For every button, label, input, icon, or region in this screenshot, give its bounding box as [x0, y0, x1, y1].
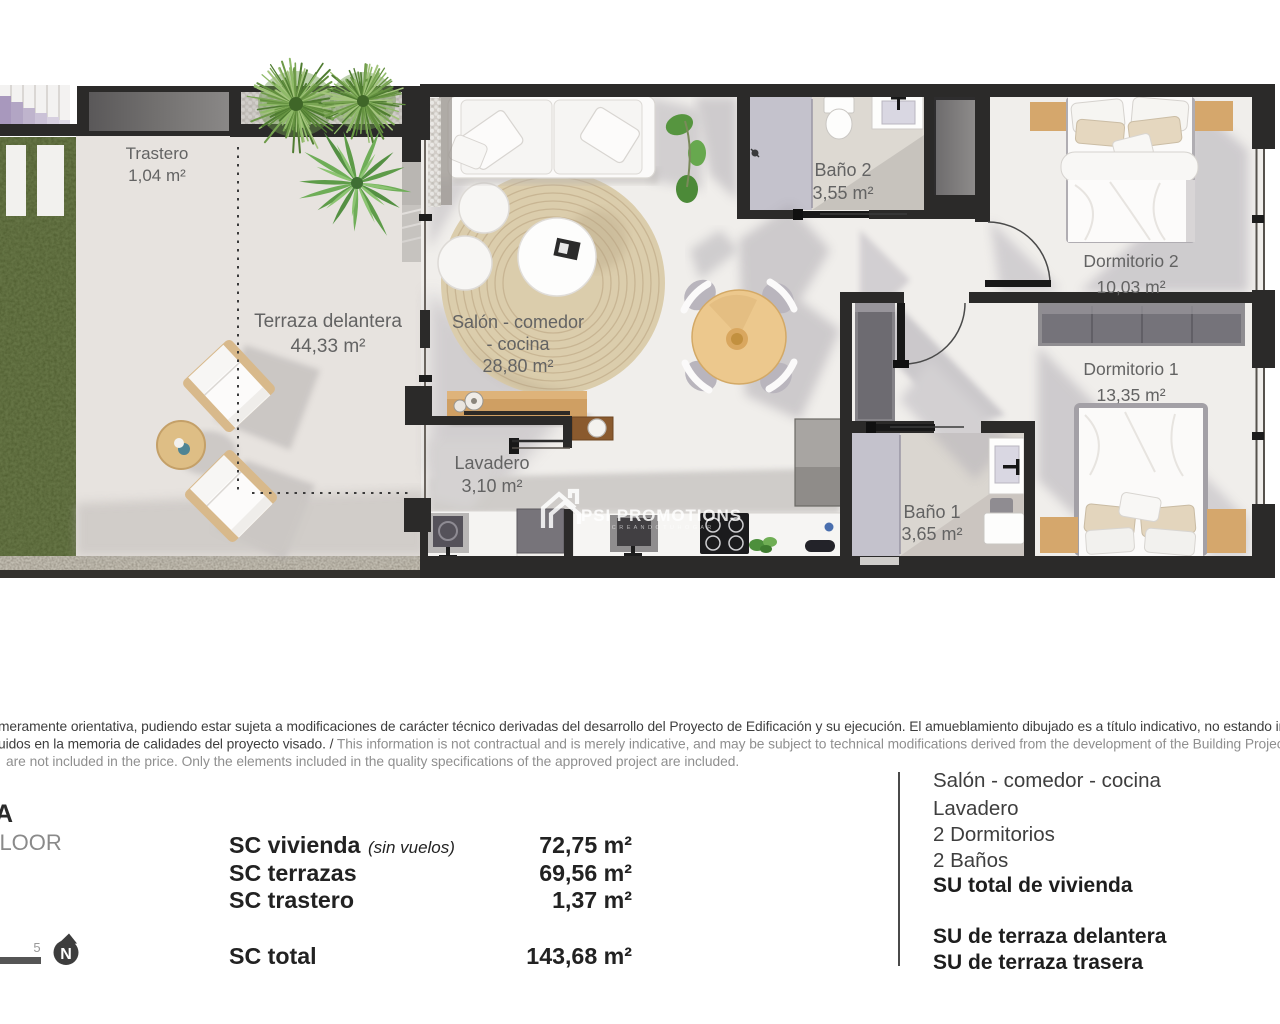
- svg-text:13,35 m²: 13,35 m²: [1096, 385, 1165, 405]
- svg-text:C R E A N D O T U H O G A R: C R E A N D O T U H O G A R: [612, 525, 712, 531]
- svg-text:Lavadero: Lavadero: [454, 453, 529, 473]
- svg-text:28,80 m²: 28,80 m²: [482, 356, 553, 376]
- svg-text:FLOOR: FLOOR: [0, 830, 62, 855]
- svg-text:69,56 m²: 69,56 m²: [539, 860, 632, 886]
- svg-text:Salón - comedor - cocina: Salón - comedor - cocina: [933, 769, 1161, 792]
- svg-text:Salón - comedor: Salón - comedor: [452, 312, 584, 332]
- svg-text:Terraza delantera: Terraza delantera: [254, 311, 402, 332]
- svg-text:SC total: SC total: [229, 943, 317, 969]
- svg-text:SC trastero: SC trastero: [229, 887, 354, 913]
- svg-text:meramente orientativa, pudiend: meramente orientativa, pudiendo estar su…: [0, 719, 1280, 734]
- svg-text:Trastero: Trastero: [126, 144, 189, 163]
- svg-text:3,10 m²: 3,10 m²: [461, 476, 522, 496]
- svg-text:SU de terraza trasera: SU de terraza trasera: [933, 951, 1143, 974]
- svg-text:10,03 m²: 10,03 m²: [1096, 277, 1165, 297]
- svg-text:44,33 m²: 44,33 m²: [291, 336, 366, 357]
- svg-text:143,68 m²: 143,68 m²: [526, 943, 632, 969]
- svg-text:5: 5: [33, 940, 40, 955]
- svg-text:Dormitorio 1: Dormitorio 1: [1083, 359, 1178, 379]
- svg-text:uidos en la memoria de calidad: uidos en la memoria de calidades del pro…: [0, 737, 1280, 752]
- svg-text:3,65 m²: 3,65 m²: [901, 524, 962, 544]
- svg-text:N: N: [60, 946, 72, 963]
- svg-text:1,37 m²: 1,37 m²: [552, 887, 632, 913]
- svg-text:1,04 m²: 1,04 m²: [128, 166, 186, 185]
- svg-text:(sin vuelos): (sin vuelos): [368, 838, 455, 857]
- svg-text:PSI PROMOTIONS: PSI PROMOTIONS: [581, 506, 742, 525]
- svg-text:SC terrazas: SC terrazas: [229, 860, 357, 886]
- svg-text:Baño 1: Baño 1: [903, 502, 960, 522]
- svg-text:72,75 m²: 72,75 m²: [539, 832, 632, 858]
- svg-text:Lavadero: Lavadero: [933, 797, 1018, 820]
- svg-text:- cocina: - cocina: [486, 334, 550, 354]
- svg-text:2 Baños: 2 Baños: [933, 849, 1008, 872]
- svg-text:SU total de vivienda: SU total de vivienda: [933, 874, 1133, 897]
- svg-text:SU de terraza delantera: SU de terraza delantera: [933, 925, 1167, 948]
- svg-text:2 Dormitorios: 2 Dormitorios: [933, 823, 1055, 846]
- svg-text:are not included in the price.: are not included in the price. Only the …: [6, 754, 739, 769]
- svg-text:Dormitorio 2: Dormitorio 2: [1083, 251, 1178, 271]
- svg-text:Baño 2: Baño 2: [814, 160, 871, 180]
- svg-text:SC vivienda: SC vivienda: [229, 832, 362, 858]
- svg-text:3,55 m²: 3,55 m²: [812, 183, 873, 203]
- svg-text:A: A: [0, 800, 13, 828]
